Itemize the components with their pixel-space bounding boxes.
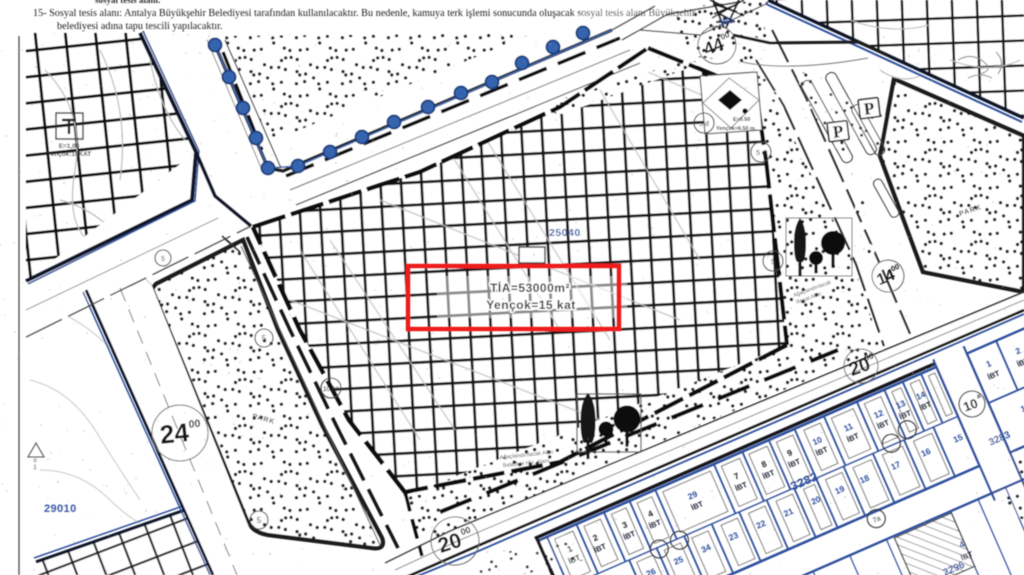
svg-text:5: 5 bbox=[257, 516, 262, 525]
svg-text:5: 5 bbox=[262, 334, 267, 343]
svg-text:E=0.50: E=0.50 bbox=[733, 117, 750, 123]
svg-text:5: 5 bbox=[161, 256, 165, 263]
svg-text:sosyal tesis alanı.: sosyal tesis alanı. bbox=[95, 0, 160, 5]
svg-text:belediyesi adına tapu tescili: belediyesi adına tapu tescili yapılacakt… bbox=[57, 21, 223, 32]
svg-text:15- Sosyal tesis alanı: Antal: 15- Sosyal tesis alanı: Antalya Büyükşeh… bbox=[33, 8, 696, 19]
svg-text:25040: 25040 bbox=[549, 227, 581, 239]
svg-text:Yençok:15KAT: Yençok:15KAT bbox=[47, 151, 91, 158]
svg-text:5 d: 5 d bbox=[699, 121, 709, 128]
svg-text:29010: 29010 bbox=[44, 503, 77, 515]
svg-text:5: 5 bbox=[771, 259, 775, 266]
svg-text:TİA=53000m²: TİA=53000m² bbox=[490, 280, 570, 295]
svg-text:Yençok=15 kat: Yençok=15 kat bbox=[486, 298, 576, 312]
svg-text:E=1,00: E=1,00 bbox=[59, 143, 80, 150]
svg-text:24: 24 bbox=[158, 417, 190, 450]
svg-text:Yençok=6.50 m.: Yençok=6.50 m. bbox=[716, 126, 757, 132]
svg-text:00: 00 bbox=[188, 418, 201, 431]
svg-text:5 d: 5 d bbox=[756, 150, 766, 157]
svg-text:10.00: 10.00 bbox=[323, 386, 340, 393]
